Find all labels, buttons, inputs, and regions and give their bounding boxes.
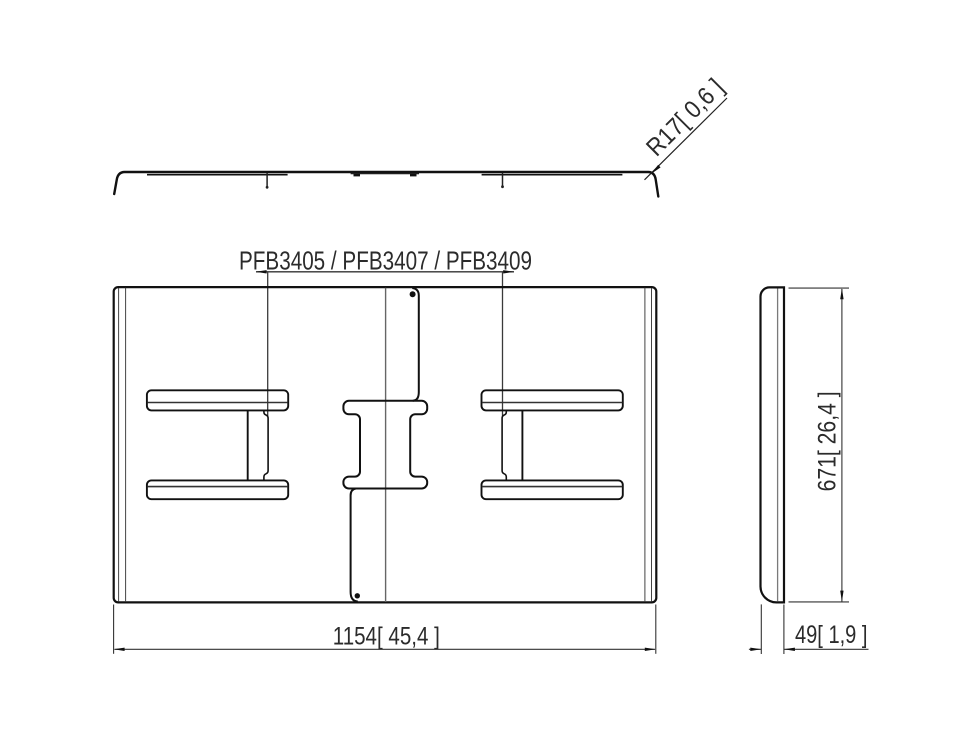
- svg-text:R17[ 0,6 ]: R17[ 0,6 ]: [641, 73, 729, 161]
- svg-text:PFB3405 / PFB3407 / PFB3409: PFB3405 / PFB3407 / PFB3409: [239, 246, 532, 276]
- svg-text:671[ 26,4 ]: 671[ 26,4 ]: [814, 391, 842, 491]
- svg-text:1154[ 45,4 ]: 1154[ 45,4 ]: [333, 623, 440, 651]
- svg-text:49[ 1,9 ]: 49[ 1,9 ]: [795, 621, 868, 649]
